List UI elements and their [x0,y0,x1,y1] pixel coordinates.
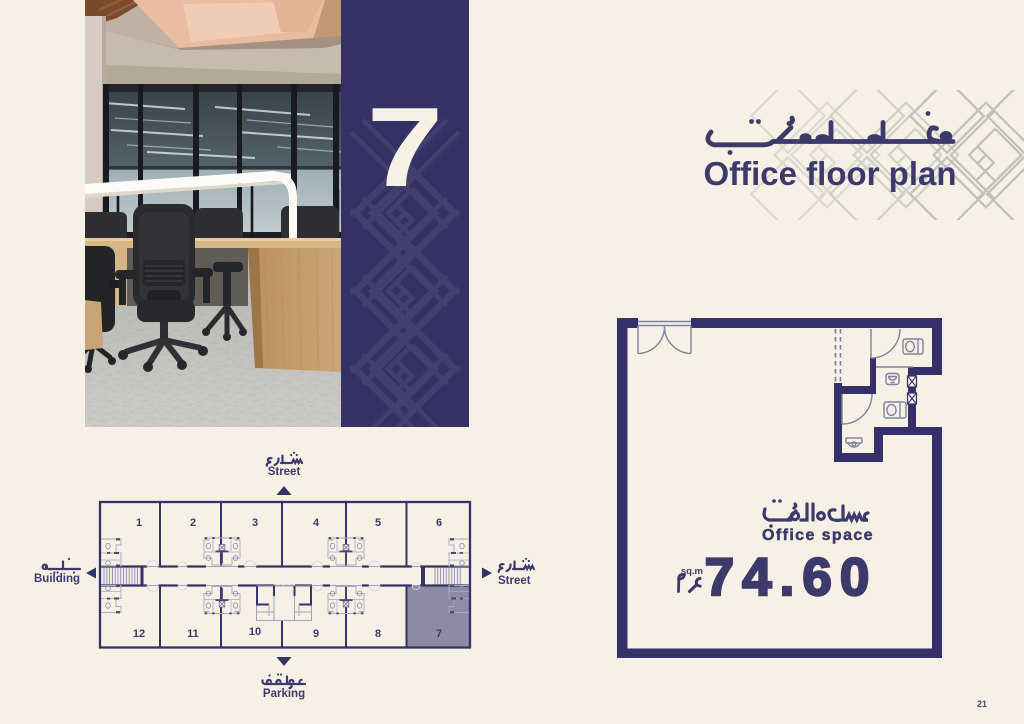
svg-text:10: 10 [249,626,261,638]
svg-text:Building: Building [34,573,80,585]
svg-text:9: 9 [313,628,319,640]
svg-text:74.60: 74.60 [705,548,878,607]
svg-text:2: 2 [190,517,196,529]
svg-text:5: 5 [375,517,381,529]
svg-text:Street: Street [498,575,531,587]
svg-text:3: 3 [252,517,258,529]
svg-text:4: 4 [313,517,320,529]
svg-text:7: 7 [436,628,442,640]
svg-text:8: 8 [375,628,381,640]
svg-text:11: 11 [187,628,199,640]
svg-text:Parking: Parking [263,688,305,700]
svg-text:12: 12 [133,628,145,640]
svg-text:Street: Street [268,466,301,478]
svg-text:1: 1 [136,517,142,529]
svg-text:Office space: Office space [762,527,874,544]
svg-text:6: 6 [436,517,442,529]
